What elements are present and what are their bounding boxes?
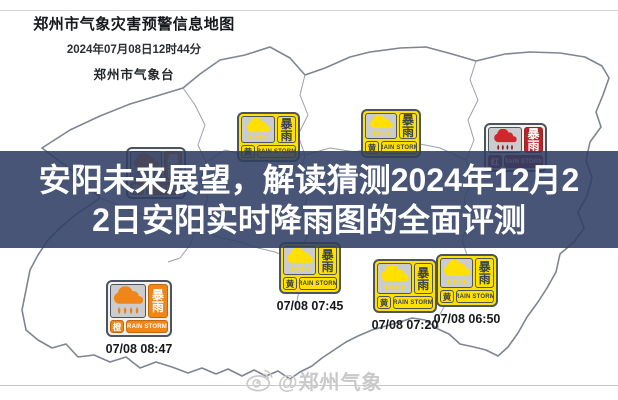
weibo-logo-icon bbox=[246, 369, 273, 393]
warning-type-english-label: RAIN STORM bbox=[299, 277, 337, 290]
warning-timestamp: 07/08 07:45 bbox=[264, 299, 356, 313]
map-title: 郑州市气象灾害预警信息地图 bbox=[18, 13, 250, 34]
watermark-text: @郑州气象 bbox=[278, 366, 383, 395]
rain-cloud-icon bbox=[241, 116, 275, 143]
warning-level-label: 黄 bbox=[283, 277, 297, 290]
rain-cloud-icon bbox=[440, 258, 473, 288]
rain-cloud-icon bbox=[488, 127, 522, 153]
warning-level-label: 黄 bbox=[440, 290, 454, 303]
warning-type-label: 暴雨 bbox=[318, 246, 337, 275]
rain-cloud-icon bbox=[283, 246, 316, 275]
warning-type-label: 暴雨 bbox=[475, 258, 494, 288]
warning-timestamp: 07/08 06:50 bbox=[421, 312, 513, 326]
warning-type-english-label: RAIN STORM bbox=[126, 320, 168, 333]
rainstorm-warning-icon-yellow: 暴雨黄RAIN STORM bbox=[373, 259, 437, 313]
warning-type-english-label: RAIN STORM bbox=[456, 290, 494, 303]
watermark: @郑州气象 bbox=[246, 366, 383, 395]
warning-type-label: 暴雨 bbox=[414, 263, 433, 294]
rainstorm-warning-icon-orange: 暴雨橙RAIN STORM bbox=[106, 280, 172, 337]
warning-type-label: 暴雨 bbox=[148, 284, 168, 318]
warning-type-english-label: RAIN STORM bbox=[393, 296, 433, 309]
rain-cloud-icon bbox=[365, 113, 397, 139]
warning-level-label: 橙 bbox=[110, 320, 124, 333]
weather-warning-map-post: 郑州市气象灾害预警信息地图 2024年07月08日12时44分 郑州市气象台 暴… bbox=[0, 0, 618, 400]
warning-level-label: 黄 bbox=[377, 296, 391, 309]
map-datetime: 2024年07月08日12时44分 bbox=[18, 41, 250, 57]
overlay-title-line2: 2日安阳实时降雨图的全面评测 bbox=[92, 200, 526, 240]
warning-timestamp: 07/08 08:47 bbox=[91, 342, 187, 356]
map-header: 郑州市气象灾害预警信息地图 2024年07月08日12时44分 郑州市气象台 bbox=[18, 13, 250, 83]
title-overlay-band: 安阳未来展望，解读猜测2024年12月2 2日安阳实时降雨图的全面评测 bbox=[0, 151, 618, 248]
rain-cloud-icon bbox=[377, 263, 412, 294]
warning-type-label: 暴雨 bbox=[277, 116, 296, 143]
rainstorm-warning-icon-yellow: 暴雨黄RAIN STORM bbox=[279, 242, 341, 294]
overlay-title-line1: 安阳未来展望，解读猜测2024年12月2 bbox=[39, 160, 580, 200]
rain-cloud-icon bbox=[110, 284, 146, 318]
warning-type-label: 暴雨 bbox=[399, 113, 417, 139]
warning-type-label: 暴雨 bbox=[524, 127, 543, 153]
rainstorm-warning-icon-yellow: 暴雨黄RAIN STORM bbox=[436, 254, 498, 307]
map-issuer: 郑州市气象台 bbox=[18, 64, 250, 83]
